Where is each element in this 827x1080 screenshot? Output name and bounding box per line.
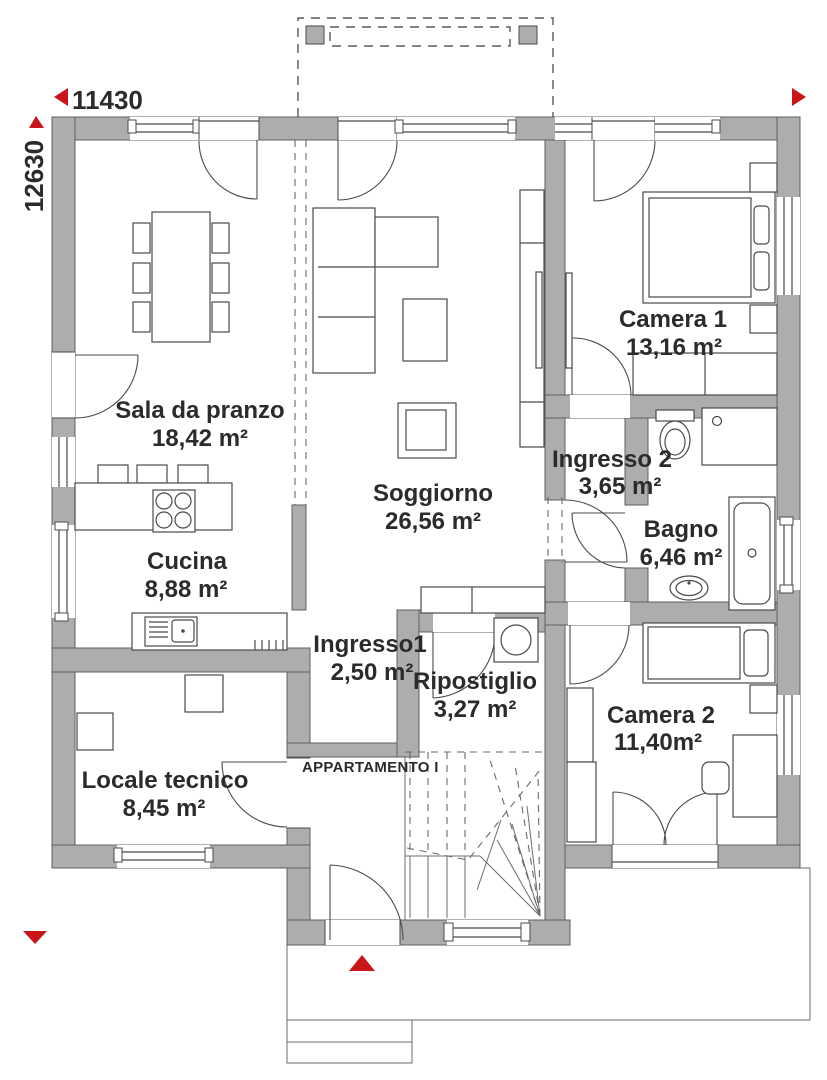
locale-tecnico-fixtures <box>77 675 223 750</box>
left-wall-openings <box>52 352 75 621</box>
room-label-camera1: Camera 1 <box>619 306 727 333</box>
dim-arrow-down-icon <box>23 931 47 944</box>
dim-arrow-left-icon <box>54 88 68 106</box>
dining-furniture <box>133 212 229 342</box>
boiler-unit <box>185 675 223 712</box>
tech-unit <box>77 713 113 750</box>
tv-icon <box>536 272 542 368</box>
room-area-bagno: 6,46 m² <box>640 544 723 571</box>
pillow <box>754 252 769 290</box>
room-area-locale: 8,45 m² <box>123 795 206 822</box>
pillow <box>754 206 769 244</box>
sofa <box>313 208 375 373</box>
room-area-sala: 18,42 m² <box>152 425 248 452</box>
room-label-ripostiglio: Ripostiglio <box>413 668 537 695</box>
bathroom-fixtures <box>656 408 777 610</box>
dim-arrow-up-icon <box>29 116 44 128</box>
bathtub-icon <box>729 497 775 610</box>
room-label-camera2: Camera 2 <box>607 702 715 729</box>
room-area-cucina: 8,88 m² <box>145 576 228 603</box>
room-area-soggiorno: 26,56 m² <box>385 508 481 535</box>
wardrobe <box>567 688 593 762</box>
room-label-ingresso1: Ingresso1 <box>313 631 426 658</box>
room-area-ingresso2: 3,65 m² <box>579 473 662 500</box>
room-label-locale: Locale tecnico <box>82 767 249 794</box>
room-area-camera1: 13,16 m² <box>626 334 722 361</box>
dim-height-label: 12630 <box>19 140 49 212</box>
apartment-label: APPARTAMENTO I <box>302 759 439 776</box>
tv-icon <box>566 273 572 368</box>
room-area-camera2: 11,40m² <box>614 729 702 756</box>
desk <box>733 735 777 817</box>
staircase <box>405 752 543 920</box>
coffee-table <box>403 299 447 361</box>
room-label-cucina: Cucina <box>147 548 228 575</box>
floor-plan: 11430 12630 Sala da pranzo 18,42 m² Cuci… <box>0 0 827 1080</box>
dashed-divider <box>292 140 306 610</box>
room-label-soggiorno: Soggiorno <box>373 480 493 507</box>
pillow <box>744 630 768 676</box>
room-label-ingresso2: Ingresso 2 <box>552 446 672 473</box>
toilet-icon <box>656 410 694 421</box>
room-area-ingresso1: 2,50 m² <box>331 659 414 686</box>
chair <box>702 762 729 794</box>
living-furniture <box>313 190 545 613</box>
dim-arrow-right-icon <box>792 88 806 106</box>
top-wall-openings <box>128 117 720 140</box>
room-area-ripostiglio: 3,27 m² <box>434 696 517 723</box>
washbasin-cabinet <box>702 408 777 465</box>
balcony-outline <box>298 18 553 117</box>
entrance-arrow-icon <box>349 955 375 971</box>
nightstand <box>750 163 777 192</box>
room-label-sala: Sala da pranzo <box>115 397 284 424</box>
dim-width-label: 11430 <box>72 85 143 115</box>
room-label-bagno: Bagno <box>644 516 719 543</box>
nightstand <box>750 685 777 713</box>
sideboard <box>421 587 545 613</box>
cabinet <box>567 762 596 842</box>
floor-plan-drawing: 11430 12630 Sala da pranzo 18,42 m² Cuci… <box>0 0 827 1080</box>
ripostiglio-fixtures <box>494 618 538 662</box>
nightstand <box>750 305 777 333</box>
